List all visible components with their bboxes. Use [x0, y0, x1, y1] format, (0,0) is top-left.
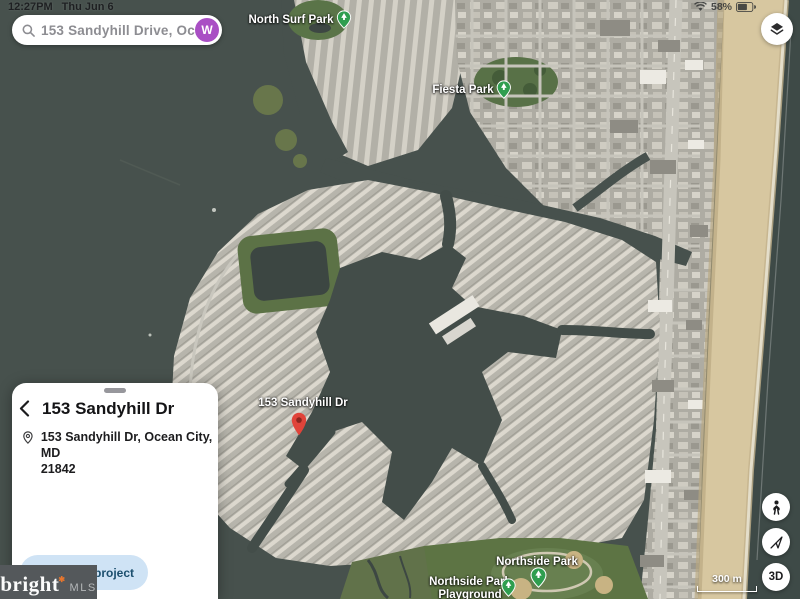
park-pin-icon [497, 80, 512, 99]
park-label-text: Fiesta Park [432, 84, 493, 96]
peninsula [170, 180, 660, 566]
map-label-destination[interactable]: 153 Sandyhill Dr [258, 397, 347, 409]
wifi-icon [694, 2, 707, 12]
watermark-brand: bright✱ [0, 568, 65, 596]
threed-button[interactable]: 3D [762, 563, 790, 591]
destination-red-pin[interactable] [291, 412, 307, 436]
watermark-suffix: MLS [70, 582, 97, 594]
address-pin-icon [22, 430, 34, 445]
chevron-left-icon [19, 400, 30, 417]
northside-park-pin[interactable] [530, 567, 547, 588]
navigation-arrow-icon [769, 535, 784, 550]
watermark-spark-icon: ✱ [58, 575, 65, 584]
address-row: 153 Sandyhill Dr, Ocean City, MD 21842 [22, 429, 218, 477]
place-address: 153 Sandyhill Dr, Ocean City, MD 21842 [41, 429, 218, 477]
map-label-north-surf-park[interactable]: North Surf Park [249, 10, 352, 29]
map-scale: 300 m [697, 573, 757, 592]
scale-line [697, 586, 757, 592]
map-label-northside-playground[interactable]: Northside Park Playground [429, 576, 511, 599]
scale-label: 300 m [697, 573, 757, 585]
map-label-fiesta-park[interactable]: Fiesta Park [432, 80, 511, 99]
clock: 12:27PM [8, 1, 53, 13]
status-bar-left: 12:27PM Thu Jun 6 [8, 1, 114, 13]
back-button[interactable] [19, 400, 30, 417]
search-bar[interactable]: 153 Sandyhill Drive, Ocean W [12, 15, 222, 45]
place-title: 153 Sandyhill Dr [42, 399, 174, 419]
date: Thu Jun 6 [62, 1, 114, 13]
battery-percent: 58% [711, 1, 732, 13]
destination-label-text: 153 Sandyhill Dr [258, 397, 347, 409]
park-label-text: Northside Park Playground [429, 576, 511, 599]
layers-icon [768, 20, 786, 38]
park-label-text: North Surf Park [249, 14, 334, 26]
pedestrian-icon [770, 500, 783, 515]
account-avatar[interactable]: W [195, 18, 219, 42]
bright-mls-watermark: bright✱ MLS [0, 565, 97, 599]
park-pin-icon [337, 10, 352, 29]
status-bar-right: 58% [694, 1, 756, 13]
maps-app-window: North Surf Park Fiesta Park 153 Sandyhil… [0, 0, 800, 599]
card-drag-handle[interactable] [104, 388, 126, 393]
search-input[interactable]: 153 Sandyhill Drive, Ocean [41, 23, 195, 38]
search-icon [22, 24, 35, 37]
playground-pin[interactable] [501, 578, 516, 597]
locate-me-button[interactable] [762, 528, 790, 556]
map-layers-button[interactable] [761, 13, 793, 45]
battery-icon [736, 2, 756, 12]
look-around-button[interactable] [762, 493, 790, 521]
